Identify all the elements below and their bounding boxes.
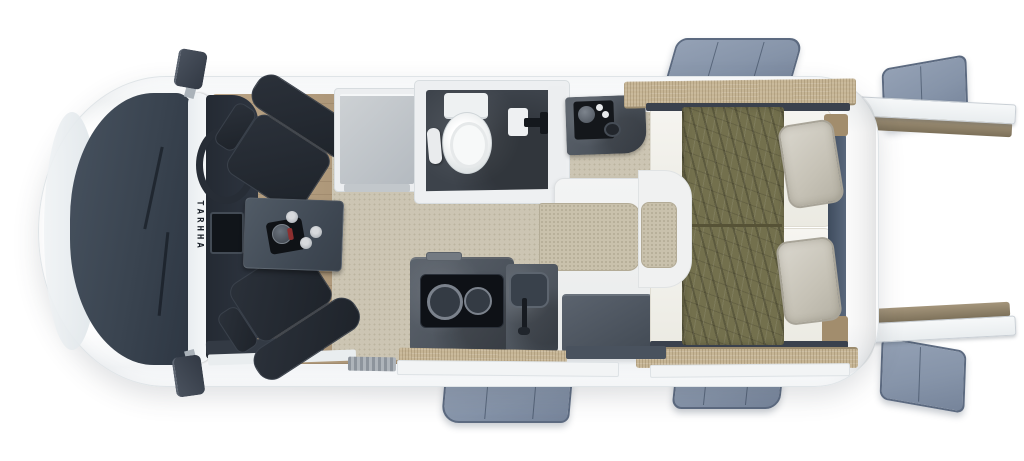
burner-right xyxy=(464,287,492,315)
flap-seam xyxy=(918,347,921,401)
body-edge-trim xyxy=(397,360,619,377)
bench-cushion xyxy=(539,203,640,271)
shower-head-handle xyxy=(540,112,548,134)
campervan-floorplan: TARHHA xyxy=(0,0,1024,461)
espresso-cup xyxy=(300,237,312,249)
bed-blanket-seam xyxy=(682,224,782,227)
burner-left xyxy=(427,284,463,320)
toilet-seat xyxy=(450,122,488,168)
rearview-mirror-console xyxy=(210,212,244,254)
window-flap-bottom-rear xyxy=(880,336,967,414)
entry-step xyxy=(348,357,396,372)
wardrobe-trim xyxy=(344,184,410,192)
espresso-cup xyxy=(286,211,298,223)
kitchen-sink xyxy=(509,272,549,308)
body-edge-trim xyxy=(650,363,850,378)
soap-dish xyxy=(596,104,603,111)
vanity-faucet xyxy=(604,122,621,137)
kitchen-faucet xyxy=(522,298,527,330)
kitchen-handle xyxy=(426,252,462,261)
side-mirror-bottom xyxy=(171,354,205,398)
espresso-cup xyxy=(310,226,322,238)
kitchen-faucet-base xyxy=(518,327,530,335)
brand-marking: TARHHA xyxy=(193,180,206,272)
bed-step-cushion xyxy=(641,202,677,268)
wardrobe-top xyxy=(340,94,414,184)
bench-table-panel xyxy=(562,294,652,353)
sliding-door-sill xyxy=(566,346,666,359)
soap-dish xyxy=(602,111,609,118)
washbasin-bowl xyxy=(578,106,595,123)
pillow-bottom xyxy=(775,236,843,326)
